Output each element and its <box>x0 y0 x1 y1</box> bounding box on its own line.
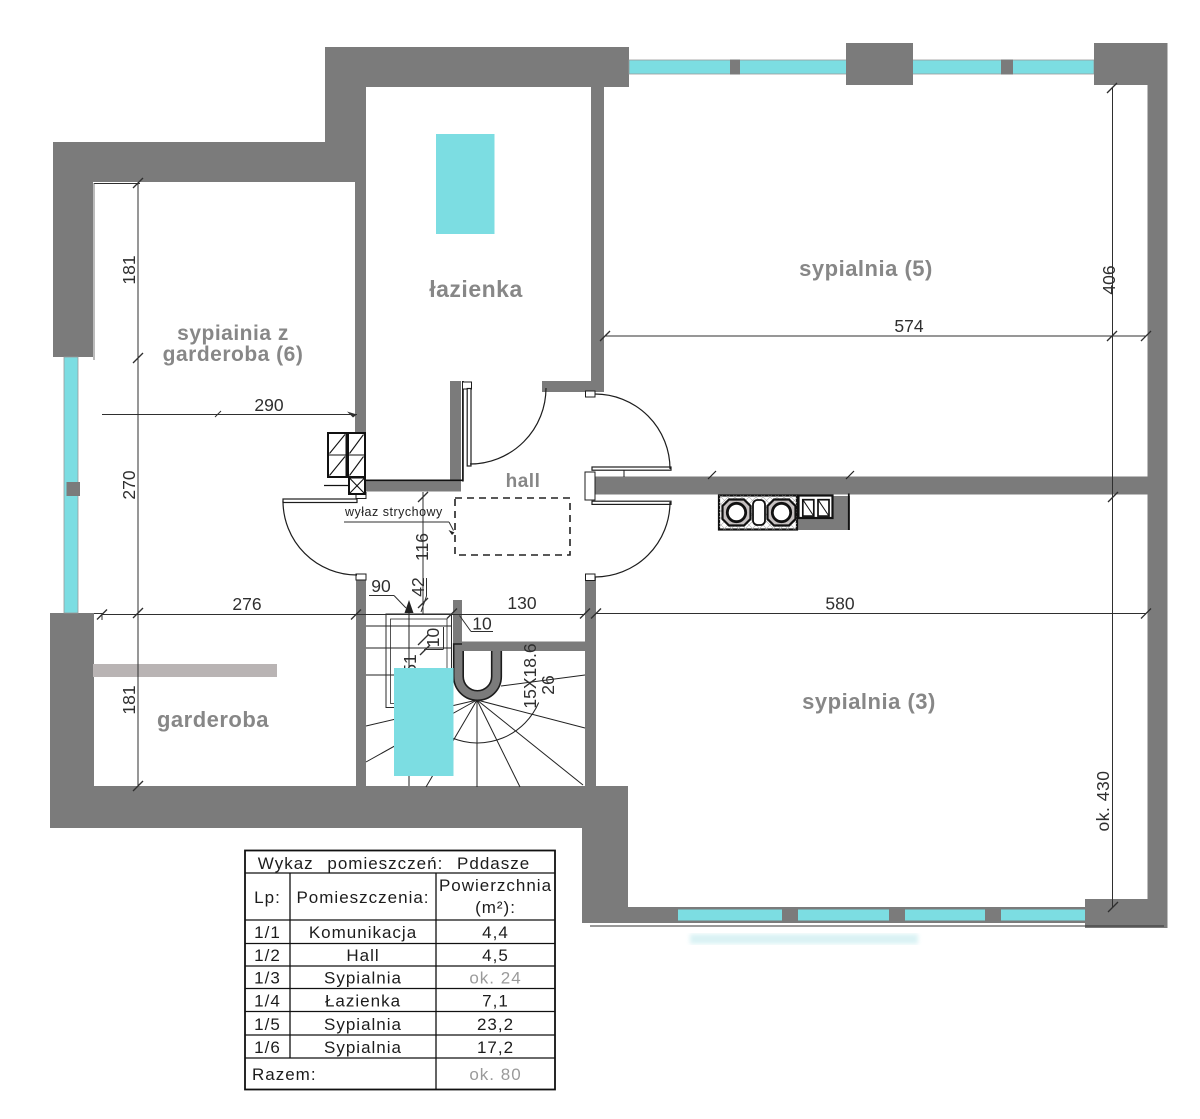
svg-text:10: 10 <box>472 614 492 634</box>
svg-text:1/4: 1/4 <box>254 992 281 1011</box>
svg-text:116: 116 <box>412 533 432 561</box>
svg-text:1/1: 1/1 <box>254 923 281 942</box>
svg-text:580: 580 <box>825 594 854 614</box>
svg-text:290: 290 <box>254 395 283 415</box>
svg-text:Hall: Hall <box>346 946 379 965</box>
svg-text:90: 90 <box>371 576 391 596</box>
svg-text:sypialnia (5): sypialnia (5) <box>799 256 933 281</box>
svg-text:sypiainia z: sypiainia z <box>177 322 289 345</box>
svg-text:ok. 430: ok. 430 <box>1093 771 1113 832</box>
svg-text:Sypialnia: Sypialnia <box>324 1038 402 1057</box>
svg-text:Sypialnia: Sypialnia <box>324 1015 402 1034</box>
svg-text:Komunikacja: Komunikacja <box>309 923 417 942</box>
svg-text:Powierzchnia: Powierzchnia <box>439 876 552 895</box>
svg-text:7,1: 7,1 <box>482 992 509 1011</box>
svg-text:574: 574 <box>894 316 923 336</box>
svg-text:Łazienka: Łazienka <box>325 992 401 1011</box>
svg-text:garderoba: garderoba <box>157 707 269 732</box>
svg-text:15X18.6: 15X18.6 <box>520 643 540 708</box>
svg-text:ok. 24: ok. 24 <box>469 969 521 988</box>
svg-text:łazienka: łazienka <box>429 276 523 302</box>
svg-text:270: 270 <box>119 470 139 499</box>
svg-text:130: 130 <box>507 593 536 613</box>
svg-text:4,5: 4,5 <box>482 946 509 965</box>
svg-text:Pomieszczenia:: Pomieszczenia: <box>296 888 429 907</box>
svg-text:wyłaz strychowy: wyłaz strychowy <box>344 505 443 519</box>
svg-text:Sypialnia: Sypialnia <box>324 969 402 988</box>
svg-text:181: 181 <box>119 685 139 714</box>
svg-text:1/6: 1/6 <box>254 1038 281 1057</box>
svg-text:sypialnia (3): sypialnia (3) <box>802 689 936 714</box>
svg-text:1/5: 1/5 <box>254 1015 281 1034</box>
svg-text:Wykaz pomieszczeń: Pddasze: Wykaz pomieszczeń: Pddasze <box>258 854 530 873</box>
svg-text:Lp:: Lp: <box>254 888 281 907</box>
svg-text:406: 406 <box>1099 265 1119 294</box>
svg-text:ok. 80: ok. 80 <box>469 1065 521 1084</box>
svg-text:(m²):: (m²): <box>475 898 516 917</box>
svg-text:4,4: 4,4 <box>482 923 509 942</box>
svg-text:17,2: 17,2 <box>477 1038 514 1057</box>
svg-text:hall: hall <box>506 471 541 492</box>
svg-text:Razem:: Razem: <box>252 1065 317 1084</box>
svg-text:1/2: 1/2 <box>254 946 281 965</box>
svg-text:1/3: 1/3 <box>254 969 281 988</box>
svg-text:42: 42 <box>408 577 428 596</box>
svg-text:26: 26 <box>538 675 558 694</box>
svg-text:garderoba (6): garderoba (6) <box>163 343 304 366</box>
svg-text:276: 276 <box>232 594 261 614</box>
svg-text:181: 181 <box>119 255 139 284</box>
svg-text:23,2: 23,2 <box>477 1015 514 1034</box>
